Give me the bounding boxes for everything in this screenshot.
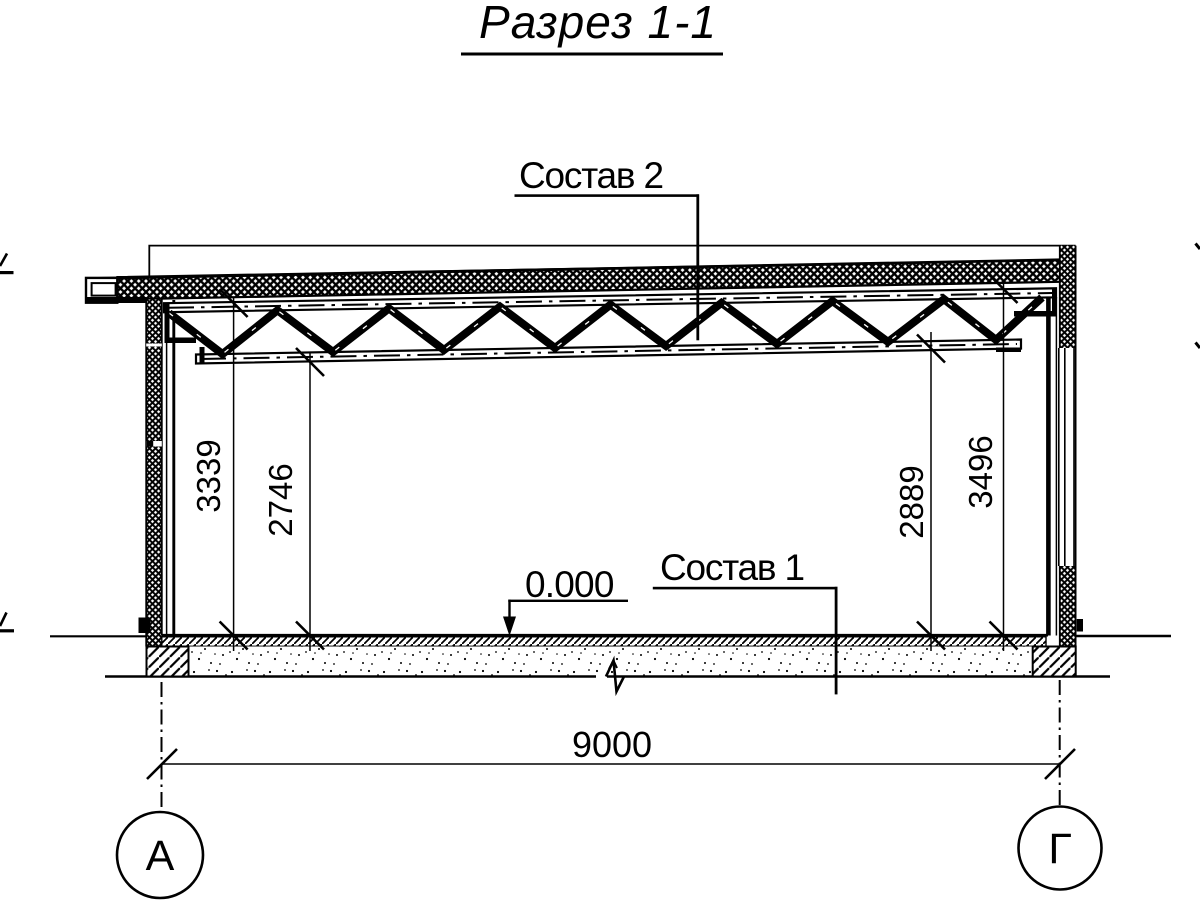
svg-text:Состав 2: Состав 2 (519, 155, 663, 196)
svg-text:2889: 2889 (893, 465, 930, 538)
svg-text:3496: 3496 (962, 435, 999, 508)
svg-text:Состав 1: Состав 1 (660, 547, 804, 588)
svg-text:2746: 2746 (262, 463, 299, 536)
svg-text:3339: 3339 (190, 439, 227, 512)
svg-text:А: А (146, 832, 175, 880)
svg-text:Разрез 1-1: Разрез 1-1 (479, 0, 717, 48)
svg-text:9000: 9000 (572, 724, 652, 765)
svg-text:0.000: 0.000 (525, 564, 614, 605)
svg-text:Г: Г (1048, 825, 1071, 873)
